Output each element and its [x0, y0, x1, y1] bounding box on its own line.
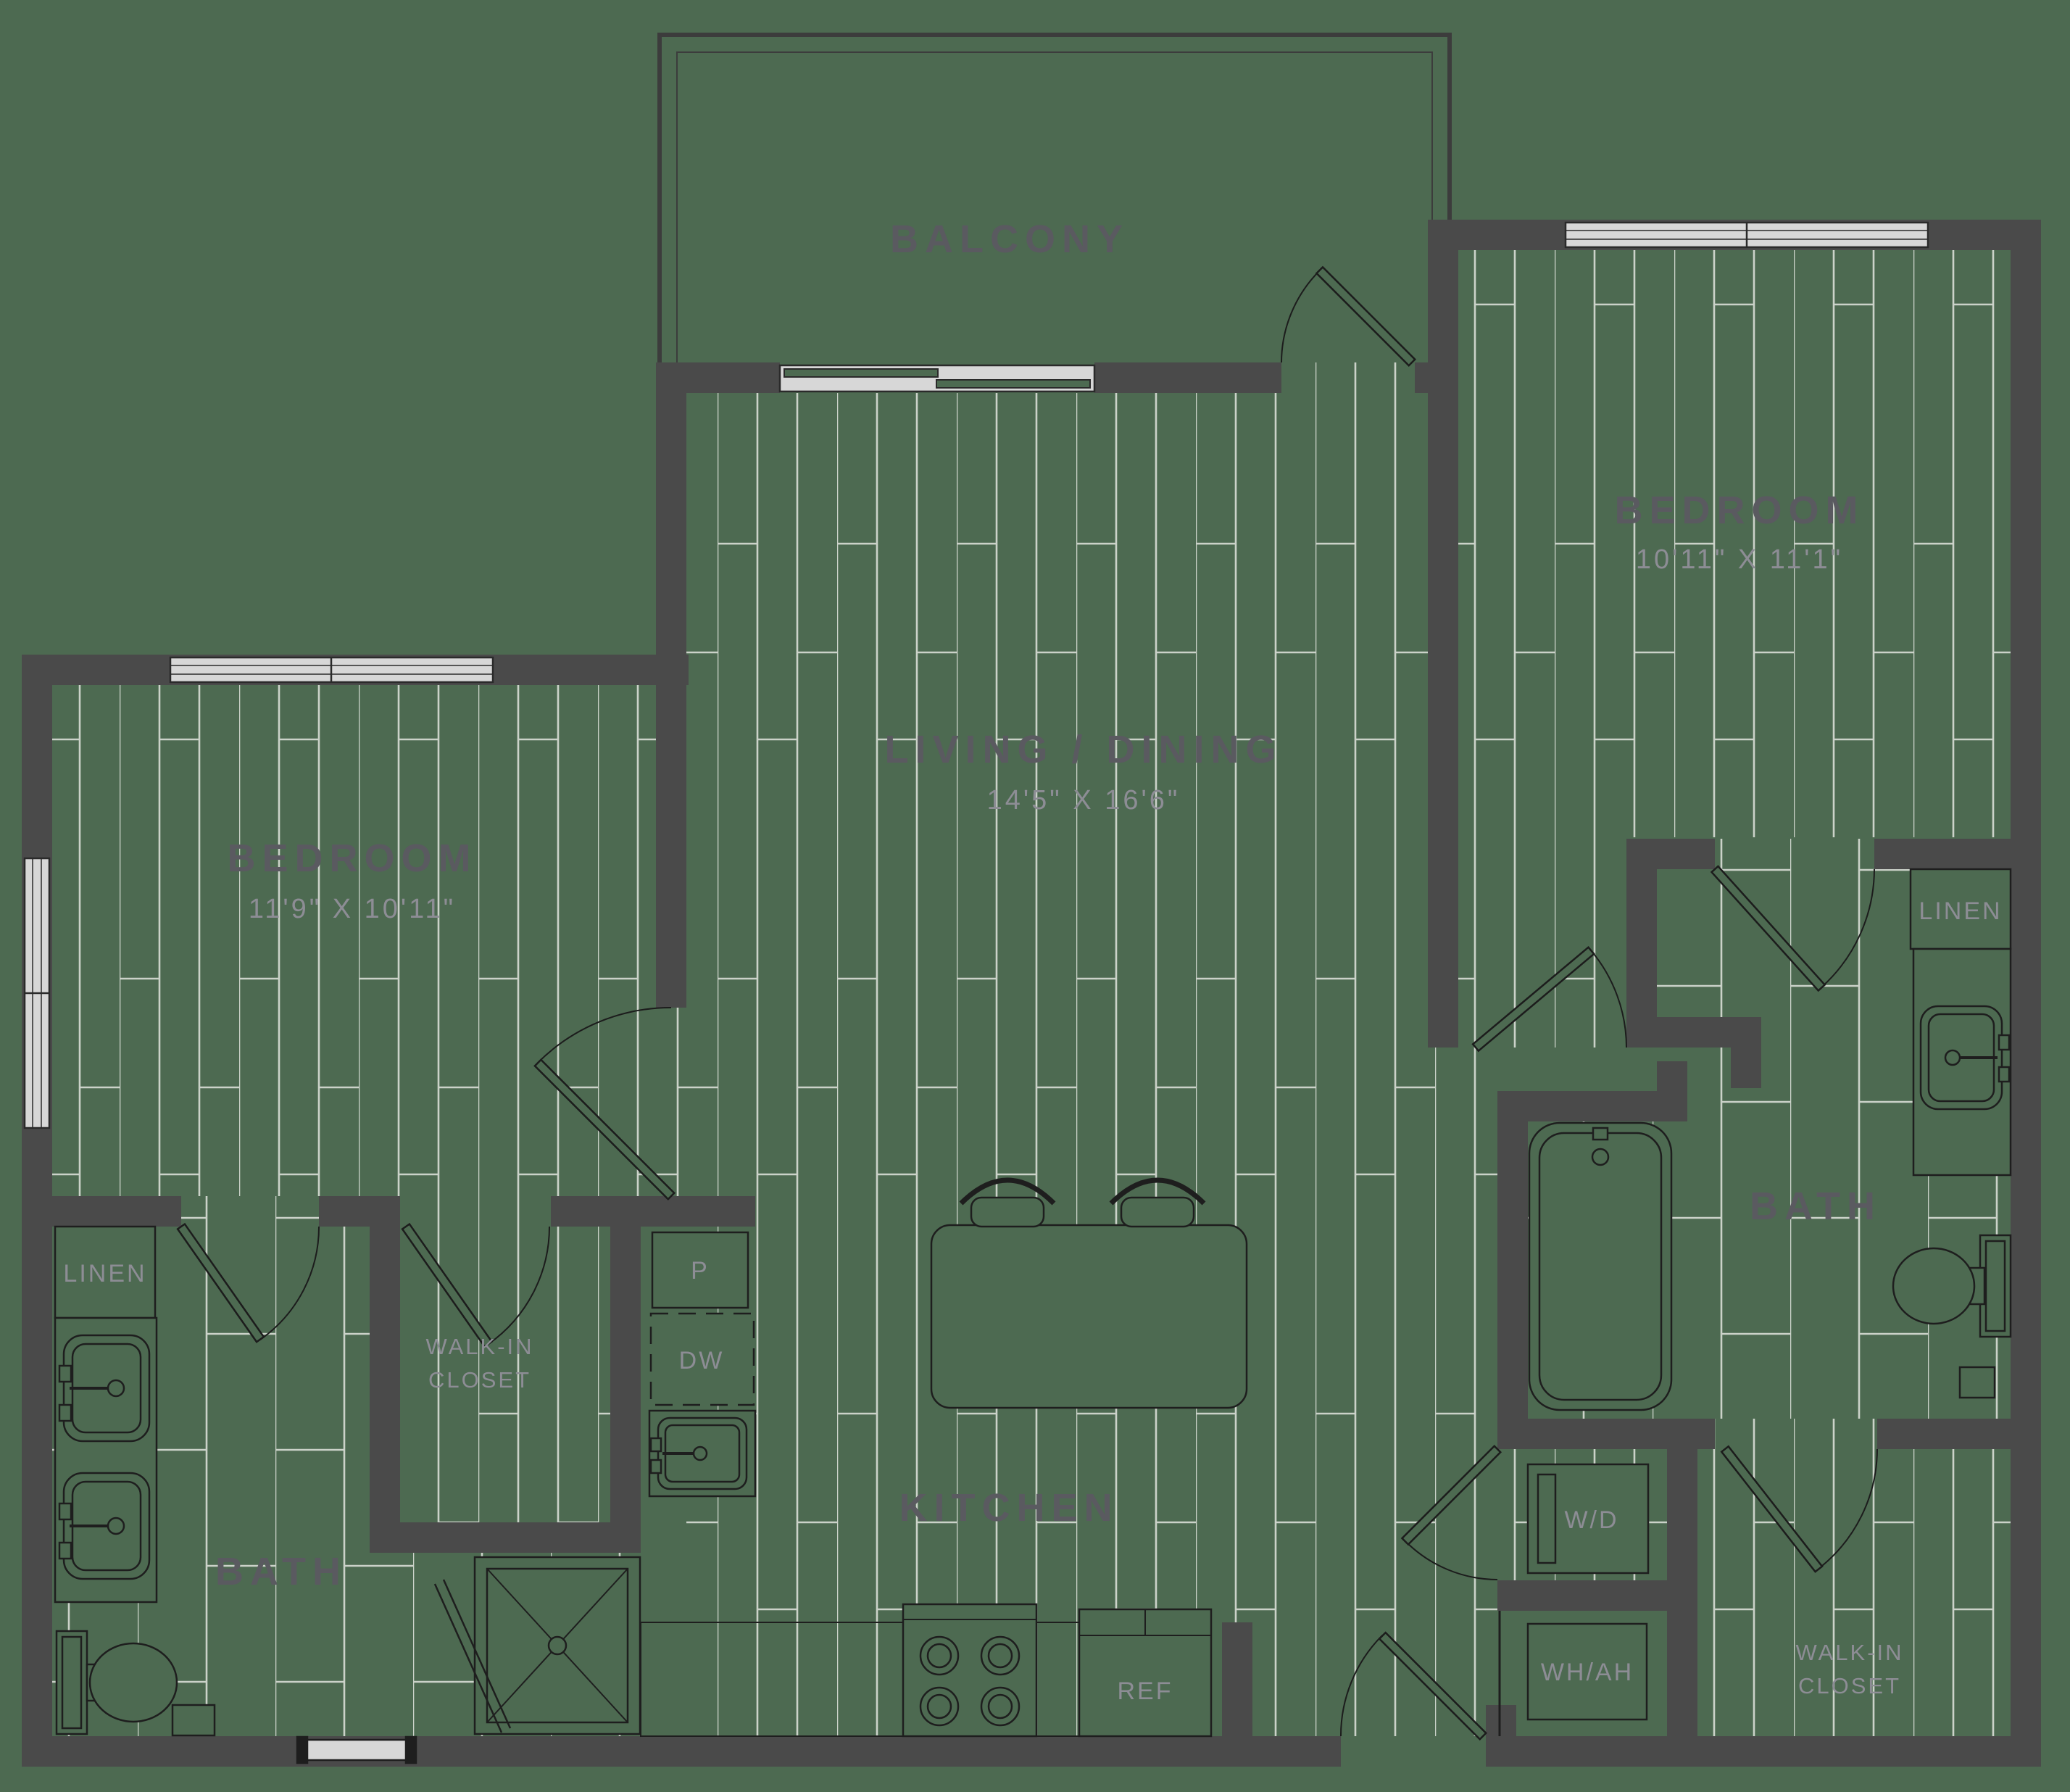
bedroom-right-label: BEDROOM: [1615, 489, 1865, 532]
window-bedroom-left-side: [25, 858, 49, 1128]
refrigerator: [1079, 1609, 1211, 1736]
living-dining-label: LIVING / DINING: [884, 728, 1282, 771]
stove: [903, 1604, 1036, 1736]
bedroom-left-label: BEDROOM: [228, 837, 478, 880]
window-bedroom-right-top: [1566, 223, 1928, 247]
floor-plan-drawing: BALCONY LIVING / DINING 14'5" X 16'6" BE…: [0, 0, 2070, 1792]
bath-left-label: BATH: [215, 1550, 347, 1593]
bath-left-cabinet: [172, 1705, 215, 1735]
walk-in-right-line2: CLOSET: [1798, 1673, 1901, 1698]
bathtub: [1529, 1123, 1671, 1410]
kitchen-label: KITCHEN: [899, 1486, 1119, 1530]
floor-plan: BALCONY LIVING / DINING 14'5" X 16'6" BE…: [0, 0, 2070, 1792]
bedroom-right-dims: 10'11" X 11'1": [1636, 544, 1843, 575]
sink-left-1: [59, 1335, 149, 1441]
vanity-right: [1913, 949, 2011, 1175]
kitchen-sink: [649, 1411, 755, 1496]
window-bedroom-left-top: [170, 658, 493, 682]
dishwasher-label: DW: [679, 1347, 725, 1374]
walk-in-left-line1: WALK-IN: [425, 1334, 533, 1359]
living-dining-dims: 14'5" X 16'6": [987, 785, 1181, 816]
balcony-label: BALCONY: [890, 217, 1129, 261]
bath-right-label: BATH: [1750, 1185, 1882, 1228]
pantry-label: P: [691, 1257, 710, 1285]
washer-dryer-label: W/D: [1564, 1506, 1618, 1534]
walk-in-left-line2: CLOSET: [428, 1367, 531, 1393]
walk-in-right-line1: WALK-IN: [1795, 1640, 1903, 1665]
refrigerator-label: REF: [1118, 1677, 1173, 1705]
bath-left-bench: [297, 1737, 416, 1763]
balcony-sliding-door: [780, 365, 1094, 391]
bedroom-left-dims: 11'9" X 10'11": [249, 894, 456, 924]
linen-right-label: LINEN: [1919, 897, 2002, 925]
water-heater-label: WH/AH: [1541, 1659, 1634, 1686]
sink-left-2: [59, 1473, 149, 1579]
linen-left-label: LINEN: [63, 1260, 146, 1287]
